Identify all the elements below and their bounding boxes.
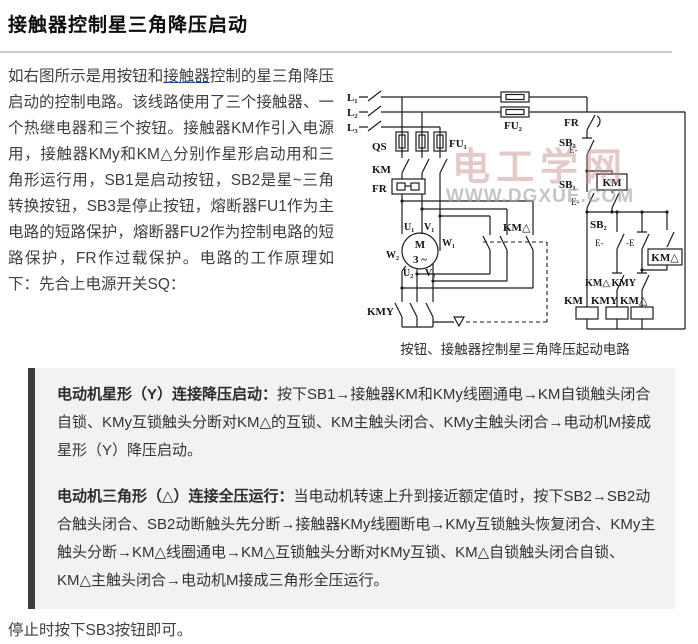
- label-coil-kmd: KM△: [620, 295, 648, 307]
- label-interlock-kmy: KMY: [612, 278, 637, 289]
- star-delta-circuit-svg: L₁ L₂ L₃ QS FU₁ KM FR U₁ V₁ W₁ W₂ U₂ V₂ …: [345, 74, 698, 336]
- label-e-sb2b: -E: [626, 238, 635, 248]
- operation-notes-block: 电动机星形（Y）连接降压启动：按下SB1→接触器KM和KMy线圈通电→KM自锁触…: [28, 368, 675, 609]
- label-u1: U₁: [404, 222, 414, 233]
- label-kmd-main: KM△: [503, 222, 531, 234]
- contactor-term-link[interactable]: 接触器: [163, 68, 210, 85]
- label-interlock-kmd: KM△: [585, 278, 610, 289]
- watermark-site-name: 电工学网: [452, 146, 628, 189]
- star-start-paragraph: 电动机星形（Y）连接降压启动：按下SB1→接触器KM和KMy线圈通电→KM自锁触…: [57, 381, 657, 465]
- label-l1: L₁: [347, 92, 358, 104]
- label-motor-m: M: [415, 239, 426, 251]
- thermal-relay-fr-box: [392, 179, 425, 194]
- label-w1: W₁: [442, 238, 455, 249]
- star-point-symbol: [454, 317, 464, 326]
- mechanical-link-dashed: [464, 242, 547, 322]
- circuit-wires: [359, 91, 685, 329]
- intro-paragraph: 如右图所示是用按钮和接触器控制的星三角降压启动的控制电路。该线路使用了三个接触器…: [8, 64, 334, 298]
- fuse-fu1-group: [396, 132, 446, 151]
- delta-run-paragraph: 电动机三角形（△）连接全压运行：当电动机转速上升到接近额定值时，按下SB2→SB…: [57, 483, 657, 595]
- label-qs: QS: [372, 141, 387, 153]
- fuse-fu2-group: [501, 92, 529, 117]
- label-fr-ctrl: FR: [564, 117, 580, 129]
- label-km-main: KM: [372, 164, 392, 176]
- circuit-diagram: L₁ L₂ L₃ QS FU₁ KM FR U₁ V₁ W₁ W₂ U₂ V₂ …: [345, 74, 698, 336]
- label-coil-kmy: KMY: [591, 295, 618, 307]
- label-motor-ph: 3 ~: [413, 254, 427, 266]
- star-start-lead: 电动机星形（Y）连接降压启动：: [57, 386, 277, 403]
- label-sb2: SB₂: [590, 219, 607, 231]
- label-w2: W₂: [386, 250, 399, 261]
- article-page: 接触器控制星三角降压启动 如右图所示是用按钮和接触器控制的星三角降压启动的控制电…: [0, 0, 698, 644]
- label-fr-main: FR: [372, 183, 388, 195]
- intro-text-after: 控制的星三角降压启动的控制电路。该线路使用了三个接触器、一个热继电器和三个按钮。…: [8, 68, 334, 293]
- watermark-site-url: WWW.DGXUE.COM: [446, 186, 634, 207]
- intro-text-before: 如右图所示是用按钮和: [8, 68, 163, 85]
- label-l3: L₃: [347, 122, 358, 134]
- delta-run-lead: 电动机三角形（△）连接全压运行：: [57, 488, 294, 505]
- label-v2: V₂: [425, 268, 435, 279]
- label-kmy-main: KMY: [367, 306, 394, 318]
- label-l2: L₂: [347, 107, 358, 119]
- label-e-sb2a: E-: [595, 238, 604, 248]
- page-title: 接触器控制星三角降压启动: [8, 12, 248, 40]
- title-divider: [0, 51, 672, 53]
- label-coil-km: KM: [564, 295, 584, 307]
- label-kmd-aux: KM△: [651, 252, 679, 264]
- coil-group: [576, 307, 653, 319]
- label-v1: V₁: [424, 222, 434, 233]
- label-fu2: FU₂: [504, 120, 523, 132]
- label-u2: U₂: [403, 268, 413, 279]
- stop-note: 停止时按下SB3按钮即可。: [8, 618, 192, 640]
- diagram-caption: 按钮、接触器控制星三角降压起动电路: [345, 338, 685, 358]
- fr-contact-hook: [597, 116, 600, 127]
